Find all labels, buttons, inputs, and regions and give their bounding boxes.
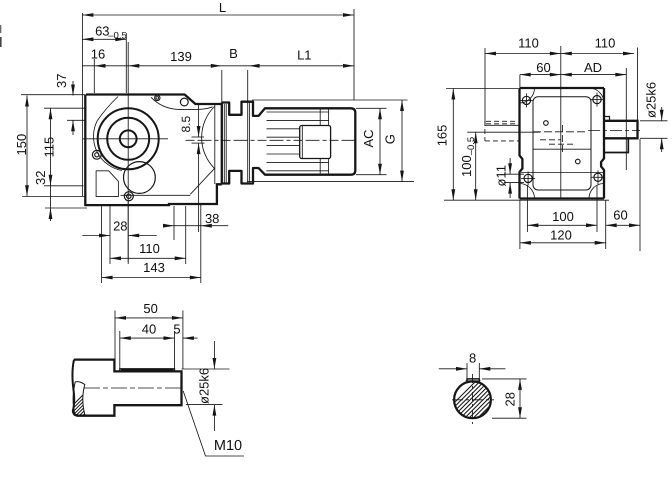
svg-text:ø25k6: ø25k6 [644,82,659,118]
svg-text:50: 50 [143,301,157,316]
svg-text:60: 60 [536,60,550,75]
svg-text:28: 28 [503,392,518,406]
svg-text:8: 8 [469,351,476,366]
svg-text:L1: L1 [297,48,311,63]
svg-text:AC: AC [361,129,376,147]
svg-text:ø25k6: ø25k6 [197,368,212,404]
svg-text:B: B [229,46,238,61]
svg-text:5: 5 [173,321,180,336]
svg-text:L: L [219,0,226,15]
svg-text:100: 100 [552,209,574,224]
svg-text:40: 40 [142,322,156,337]
svg-text:–0.5: –0.5 [108,30,127,41]
svg-text:110: 110 [595,36,616,51]
svg-text:8.5: 8.5 [179,115,193,132]
svg-text:115: 115 [42,137,57,158]
svg-text:110: 110 [139,241,160,256]
svg-text:32: 32 [33,171,48,185]
svg-text:110: 110 [518,36,539,51]
svg-text:AD: AD [584,60,602,75]
svg-text:143: 143 [143,260,165,275]
svg-text:120: 120 [550,228,572,243]
svg-text:ø11: ø11 [493,165,508,186]
svg-text:60: 60 [613,208,627,223]
svg-text:G: G [382,134,397,144]
svg-text:M10: M10 [214,438,242,454]
svg-text:16: 16 [91,46,105,61]
svg-text:100–0.5: 100–0.5 [459,137,477,177]
svg-text:38: 38 [205,211,219,226]
svg-text:37: 37 [54,74,69,88]
svg-text:28: 28 [113,218,127,233]
svg-text:165: 165 [434,125,449,147]
svg-text:139: 139 [170,49,192,64]
svg-text:150: 150 [14,134,29,156]
